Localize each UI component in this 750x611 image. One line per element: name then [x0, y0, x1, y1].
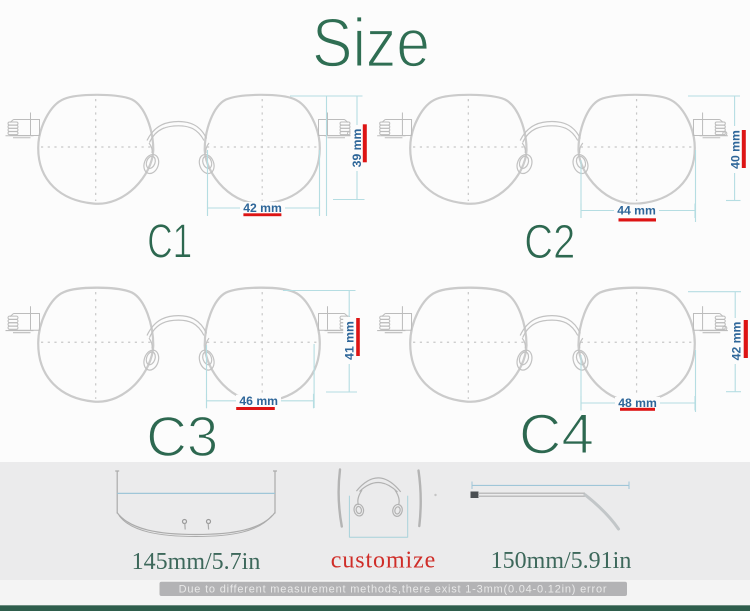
svg-text:145mm/5.7in: 145mm/5.7in: [132, 549, 261, 575]
svg-text:42 mm: 42 mm: [243, 201, 282, 215]
svg-text:Due to different measurement m: Due to different measurement methods,the…: [179, 583, 608, 595]
svg-text:C3: C3: [146, 405, 218, 469]
svg-text:40 mm: 40 mm: [729, 130, 743, 169]
svg-text:C2: C2: [524, 216, 575, 269]
svg-text:customize: customize: [331, 548, 436, 574]
svg-text:44 mm: 44 mm: [617, 204, 656, 218]
svg-text:41 mm: 41 mm: [343, 321, 357, 360]
svg-text:42 mm: 42 mm: [730, 322, 744, 361]
svg-text:39 mm: 39 mm: [350, 129, 364, 168]
svg-text:Size: Size: [312, 4, 430, 82]
svg-text:C1: C1: [147, 216, 192, 269]
svg-text:46 mm: 46 mm: [239, 394, 278, 408]
svg-text:C4: C4: [519, 403, 594, 467]
svg-text:150mm/5.91in: 150mm/5.91in: [491, 548, 632, 574]
